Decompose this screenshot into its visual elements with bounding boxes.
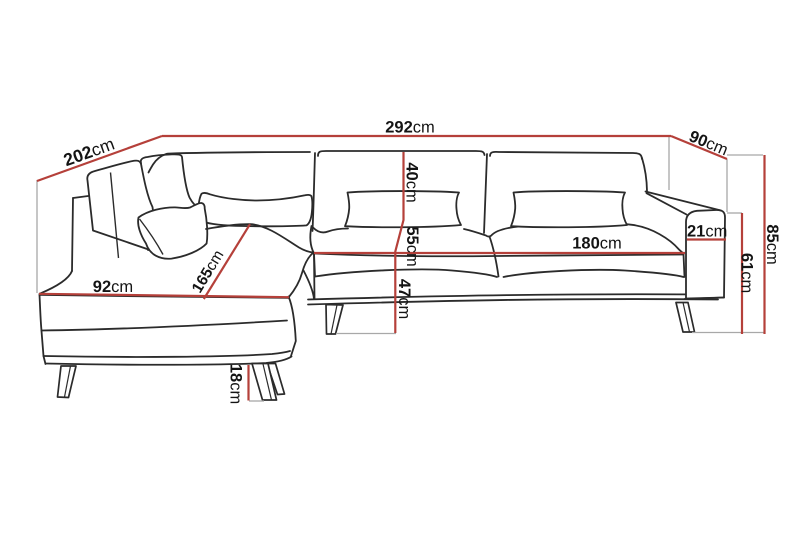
svg-text:40cm: 40cm [403, 162, 421, 202]
svg-text:21cm: 21cm [687, 222, 727, 240]
svg-text:47cm: 47cm [395, 279, 413, 319]
svg-text:180cm: 180cm [572, 234, 622, 252]
svg-text:85cm: 85cm [763, 224, 781, 264]
svg-text:18cm: 18cm [227, 364, 245, 404]
svg-text:61cm: 61cm [738, 253, 756, 293]
svg-text:292cm: 292cm [385, 118, 435, 136]
svg-text:55cm: 55cm [403, 226, 421, 266]
svg-text:92cm: 92cm [93, 278, 133, 296]
